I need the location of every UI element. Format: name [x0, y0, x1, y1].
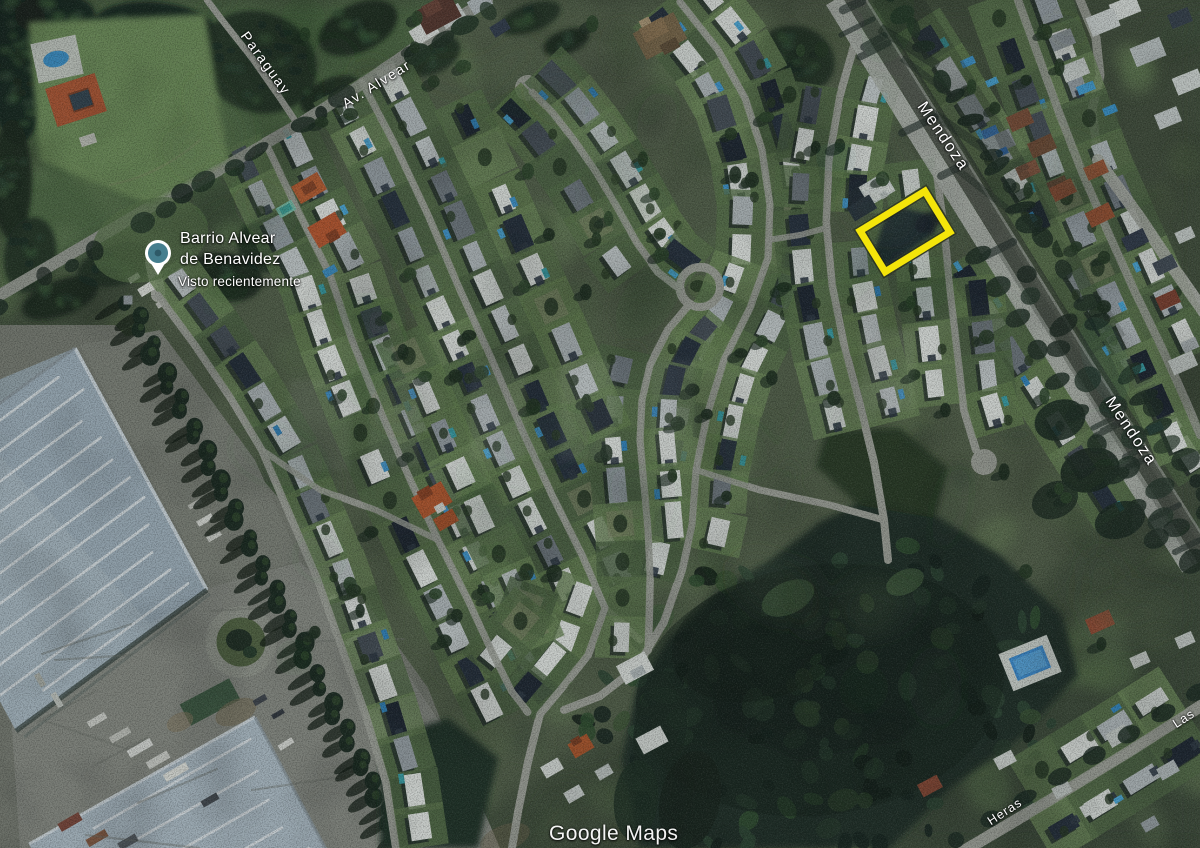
svg-text:Visto recientemente: Visto recientemente [178, 274, 301, 289]
svg-text:Google Maps: Google Maps [549, 822, 678, 845]
svg-text:Barrio Alvear: Barrio Alvear [180, 230, 276, 247]
svg-text:de Benavidez: de Benavidez [180, 251, 281, 268]
